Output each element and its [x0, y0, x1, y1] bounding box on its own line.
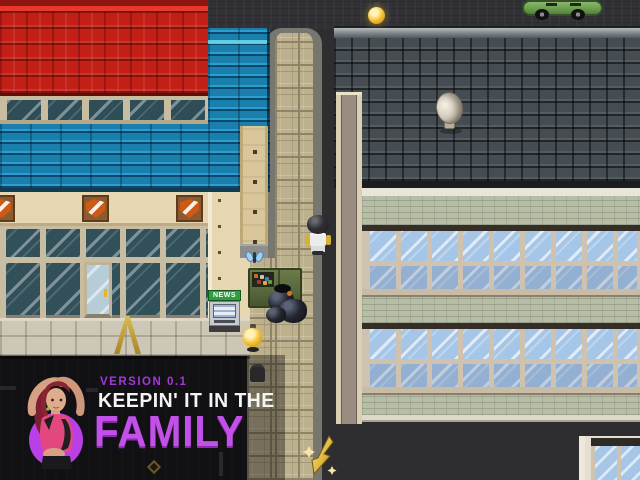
blue-butterfly[interactable] — [246, 249, 263, 265]
brick-band — [362, 196, 640, 225]
game-title-line2: FAMILY — [94, 407, 244, 457]
sword-shield-icon — [180, 199, 199, 218]
news-box-body — [209, 301, 240, 326]
garbage-bags[interactable] — [266, 284, 308, 326]
banner-woman-art — [18, 366, 94, 476]
ledge — [362, 387, 640, 395]
entrance-door[interactable] — [84, 262, 112, 318]
pillar-core — [341, 95, 357, 424]
green-car — [522, 0, 603, 20]
chimney-dash-line — [253, 126, 257, 258]
news-box-base — [209, 326, 240, 332]
window-glass — [591, 446, 640, 480]
chimney-column — [240, 126, 268, 258]
news-sign: NEWS — [208, 290, 241, 301]
car-wheel — [571, 9, 585, 20]
window-row-lower — [362, 329, 640, 387]
red-shingle-roof — [0, 0, 208, 96]
emblem-wall — [0, 192, 208, 226]
car-window — [546, 3, 557, 6]
npc-feet — [312, 251, 324, 255]
npc-torso — [310, 233, 326, 246]
window-row-upper — [362, 231, 640, 289]
npc-arm — [326, 235, 331, 245]
lamp-base — [247, 347, 259, 352]
car-wheel — [535, 9, 549, 20]
lamp-glow-icon — [243, 328, 262, 347]
street-lamp-orb — [366, 2, 388, 34]
facade-top-edge — [362, 188, 640, 196]
game-viewport: NEWS — [0, 0, 640, 480]
satellite-dish — [434, 92, 468, 138]
garbage-bag-tie — [287, 291, 292, 296]
gold-quest-arrow-icon[interactable] — [302, 434, 338, 478]
trash-bits — [254, 274, 258, 278]
blue-roof-ridge-highlight — [208, 40, 267, 44]
upper-window-strip — [0, 96, 208, 124]
car-window — [570, 3, 581, 6]
news-box-slot — [214, 320, 235, 323]
npc-hair — [307, 215, 329, 234]
ledge — [362, 289, 640, 297]
sword-shield-icon — [86, 199, 105, 218]
sword-shield-icon — [0, 199, 11, 218]
brick-band — [362, 395, 640, 415]
brick-band — [362, 297, 640, 323]
red-roof-ridge-highlight — [0, 6, 208, 11]
shield-emblem — [0, 195, 15, 222]
door-handle — [104, 289, 107, 297]
slate-tile-roof — [334, 38, 640, 188]
building-corner-pillar — [336, 92, 362, 424]
street-lamp-orb — [242, 324, 264, 356]
lamp-glow-icon — [368, 7, 385, 24]
shield-emblem — [176, 195, 203, 222]
butterfly-body — [253, 252, 256, 263]
dish-face — [433, 90, 465, 126]
blue-shingle-roof — [0, 124, 208, 192]
window-top-bar — [591, 438, 640, 446]
white-ledge — [362, 415, 640, 422]
newspaper-vending-box[interactable]: NEWS — [208, 290, 241, 332]
news-box-window — [213, 304, 236, 318]
shield-emblem — [82, 195, 109, 222]
version-label: VERSION 0.1 — [100, 376, 187, 388]
garbage-bag — [266, 307, 286, 323]
ground-floor-window — [579, 436, 640, 480]
npc-character[interactable] — [305, 213, 331, 255]
